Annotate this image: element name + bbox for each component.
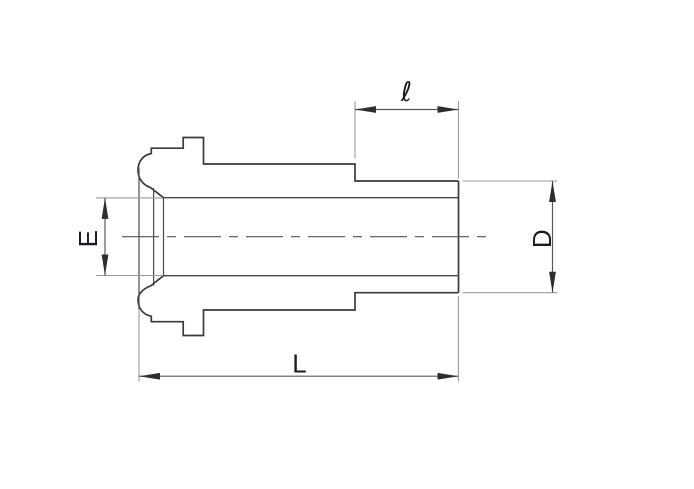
dim-ell-label: ℓ (400, 77, 412, 108)
dim-l-label: L (292, 349, 306, 379)
dim-e-label: E (73, 230, 103, 247)
dim-d-label: D (527, 229, 557, 248)
part-outline-upper (138, 138, 459, 198)
part-outline-lower (138, 276, 459, 336)
technical-drawing-svg: ℓ E D L (0, 0, 694, 489)
drawing-canvas: ℓ E D L (0, 0, 694, 489)
